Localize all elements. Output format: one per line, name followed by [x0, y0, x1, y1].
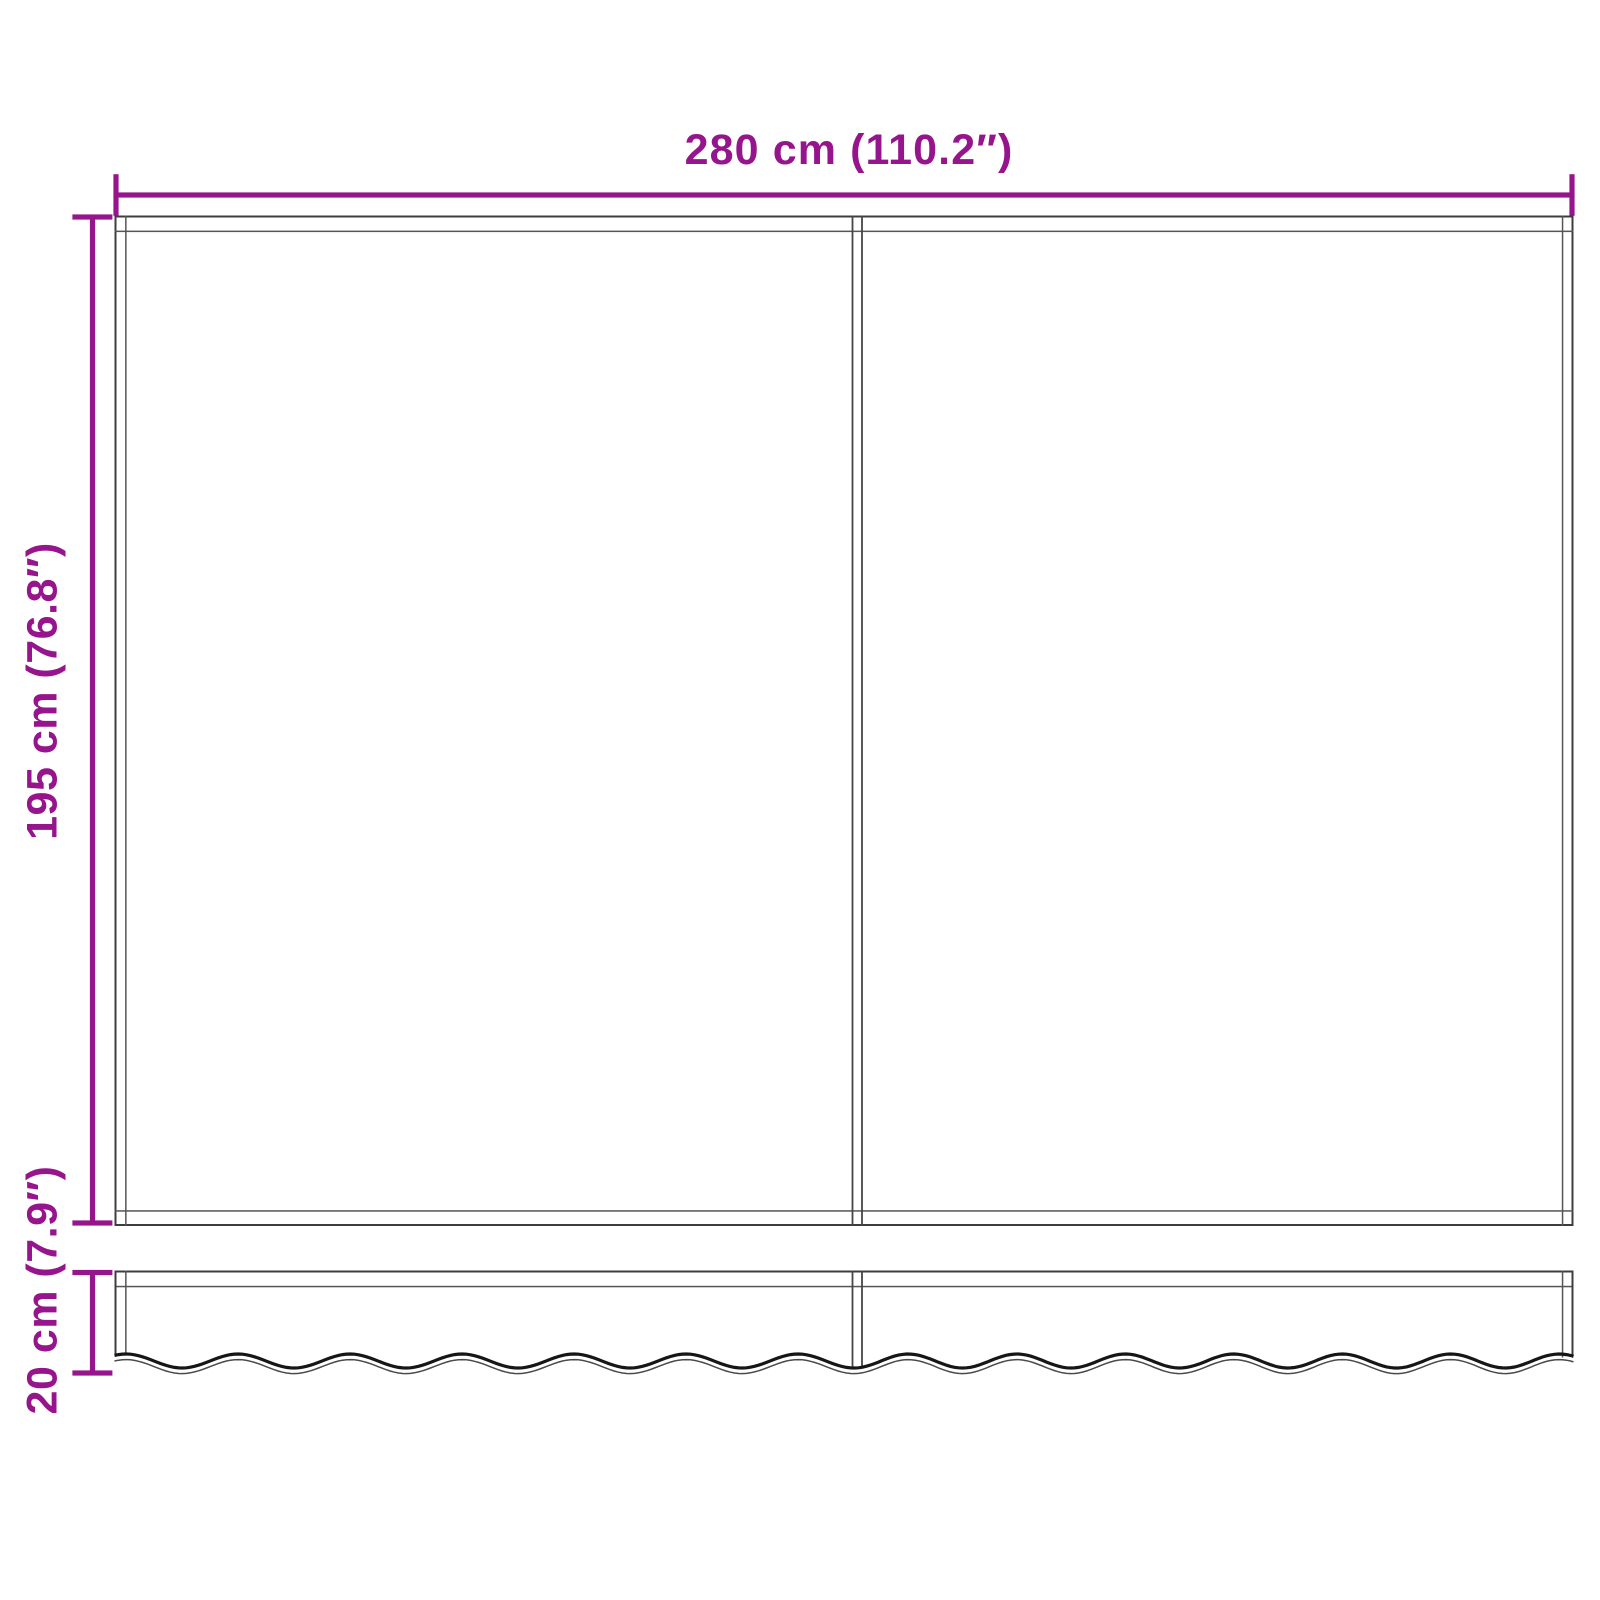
svg-text:20 cm (7.9″): 20 cm (7.9″)	[19, 1166, 67, 1415]
svg-text:195 cm (76.8″): 195 cm (76.8″)	[19, 542, 67, 840]
svg-text:280 cm (110.2″): 280 cm (110.2″)	[685, 126, 1014, 174]
